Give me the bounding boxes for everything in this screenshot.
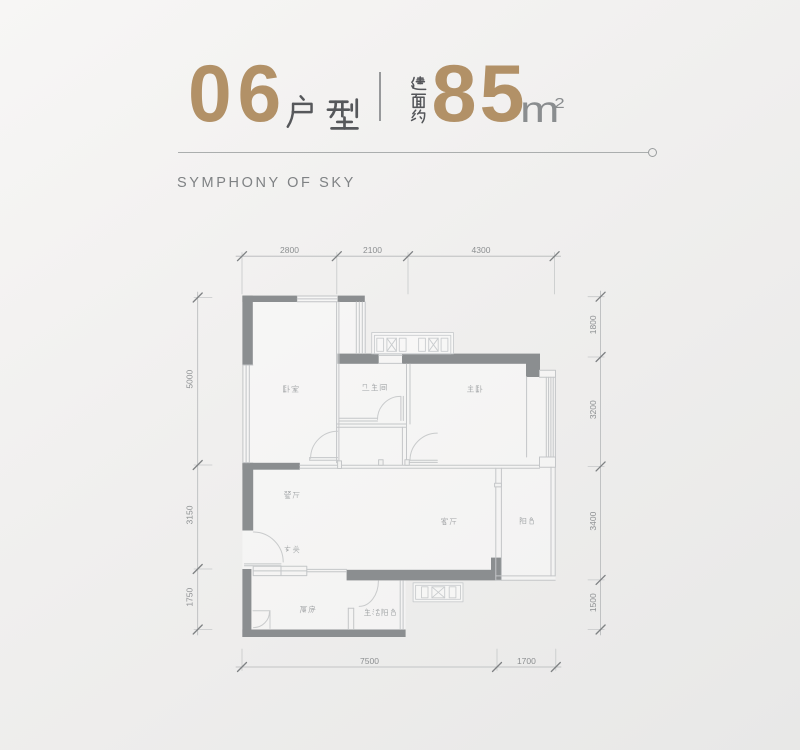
svg-text:1800: 1800	[588, 315, 598, 334]
svg-text:5000: 5000	[185, 369, 195, 388]
svg-text:2800: 2800	[280, 245, 299, 255]
svg-text:1500: 1500	[588, 593, 598, 612]
svg-text:3400: 3400	[588, 511, 598, 530]
svg-text:3150: 3150	[185, 505, 195, 524]
svg-text:1750: 1750	[185, 587, 195, 606]
svg-text:4300: 4300	[472, 245, 491, 255]
svg-text:2100: 2100	[363, 245, 382, 255]
svg-text:7500: 7500	[360, 656, 379, 666]
svg-text:3200: 3200	[588, 400, 598, 419]
svg-text:1700: 1700	[517, 656, 536, 666]
